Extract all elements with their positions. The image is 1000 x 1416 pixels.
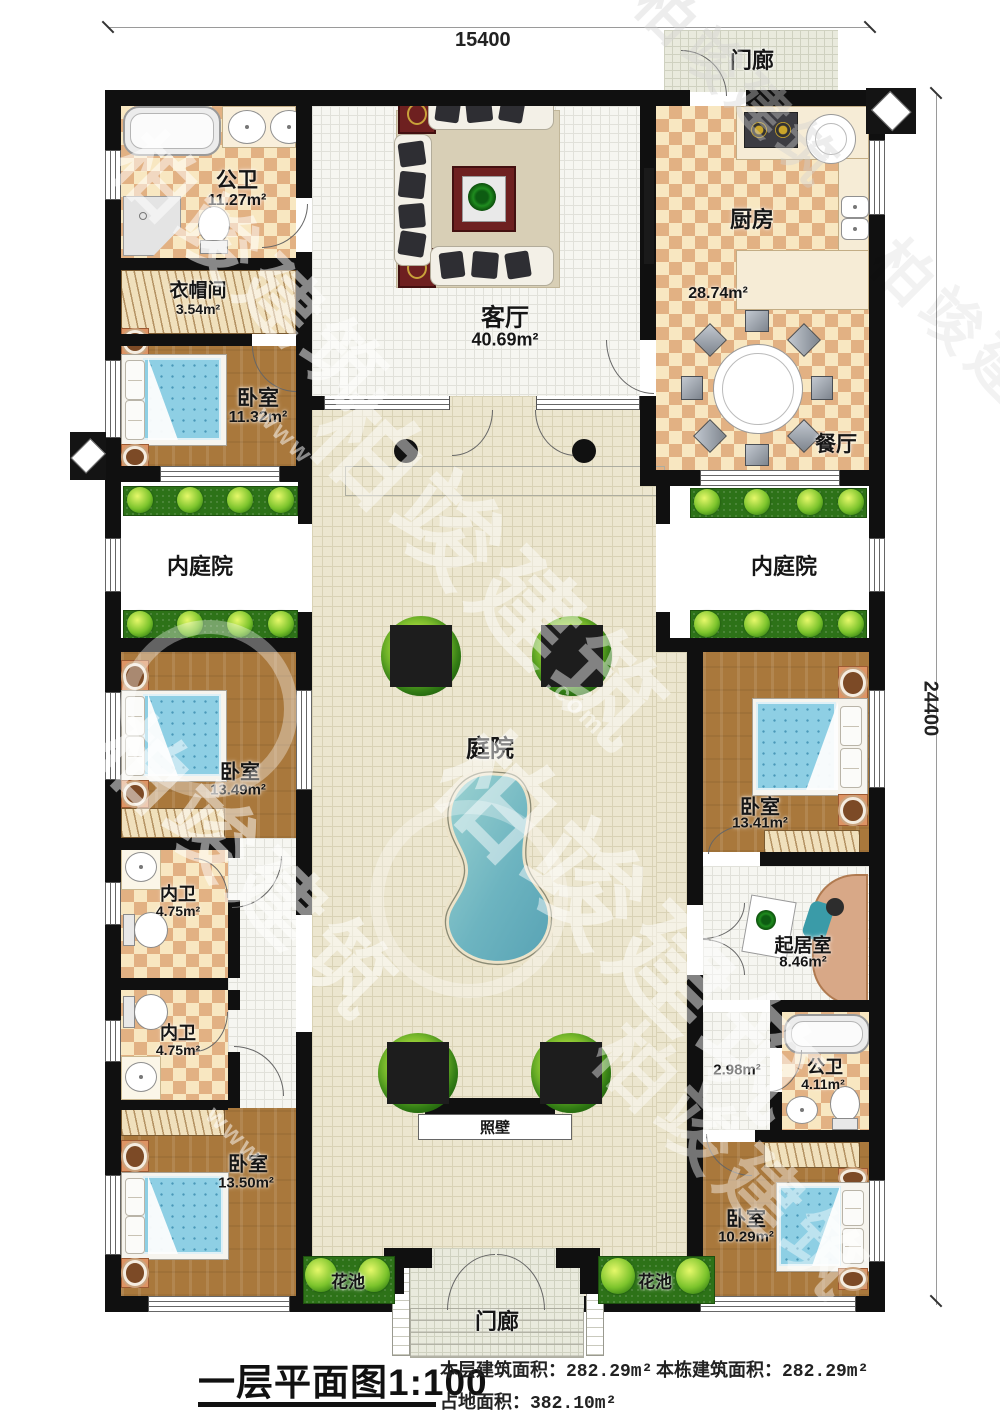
courtyard-step-outline <box>345 466 665 496</box>
kitchen-sink <box>841 218 869 240</box>
wall <box>638 396 656 410</box>
wall <box>656 482 670 524</box>
wall <box>105 638 312 652</box>
wall <box>296 790 312 915</box>
pillow <box>125 360 145 400</box>
window <box>105 150 121 200</box>
window <box>105 882 121 925</box>
bush <box>227 611 253 637</box>
wall <box>121 838 240 850</box>
bush <box>744 611 770 637</box>
room-area-bed-mr: 13.41m² <box>732 815 788 832</box>
sink <box>125 1062 157 1092</box>
tree <box>378 1033 458 1113</box>
window <box>105 692 121 780</box>
pillow <box>840 706 862 746</box>
room-label-bath-top: 公卫 <box>216 164 258 194</box>
window <box>869 1180 885 1262</box>
bathtub <box>784 1014 870 1054</box>
room-label-dining: 餐厅 <box>815 428 857 458</box>
window <box>105 1175 121 1255</box>
bush <box>227 487 253 513</box>
nightstand <box>838 1268 868 1290</box>
wardrobe <box>121 1108 225 1136</box>
room-label-bed-br: 卧室 <box>726 1203 766 1232</box>
stat-land-area: 占地面积：382.10m² <box>440 1388 616 1414</box>
window <box>296 690 312 790</box>
room-area-bath-ml2: 4.75m² <box>156 1042 200 1058</box>
room-label-bed-tl: 卧室 <box>237 382 279 412</box>
room-label-kitchen: 厨房 <box>730 202 774 234</box>
bush <box>676 1258 710 1294</box>
stove <box>744 112 798 148</box>
flowers <box>756 910 776 930</box>
column <box>572 439 596 463</box>
room-area-kitchen: 28.74m² <box>688 285 748 303</box>
room-label-cloak: 衣帽间 <box>169 276 226 303</box>
wall <box>121 258 296 270</box>
room-label-inner-left: 内庭院 <box>167 549 233 581</box>
pillow <box>125 736 145 776</box>
tree <box>531 1033 611 1113</box>
courtyard-floor-patch <box>656 652 687 1298</box>
room-area-bed-br: 10.29m² <box>718 1229 774 1246</box>
wall <box>746 90 885 106</box>
kitchen-counter <box>736 250 869 310</box>
bush <box>177 487 203 513</box>
wall <box>760 852 869 866</box>
room-area-bath-br: 4.11m² <box>801 1076 845 1092</box>
tree <box>381 616 461 696</box>
room-area-bed-ml: 13.49m² <box>210 782 266 799</box>
kitchen-round-table <box>806 114 856 164</box>
dimension-top-value: 15400 <box>455 29 511 52</box>
bush <box>268 487 294 513</box>
window <box>869 538 885 592</box>
pillow <box>842 1190 864 1226</box>
room-label-courtyard: 庭院 <box>466 729 514 764</box>
toilet-tank <box>200 240 228 254</box>
bush <box>127 611 153 637</box>
pillow <box>125 1178 145 1216</box>
chimney <box>866 88 916 134</box>
dining-chair <box>811 376 833 400</box>
window <box>324 396 450 410</box>
label-flower-left: 花池 <box>331 1268 365 1293</box>
dimension-line-top <box>108 27 870 28</box>
tv <box>644 168 654 264</box>
room-label-bed-ml: 卧室 <box>220 756 260 785</box>
tree <box>532 616 612 696</box>
room-area-living: 40.69m² <box>471 330 538 351</box>
wall <box>298 482 312 524</box>
room-label-porch-top: 门廊 <box>730 43 774 75</box>
window <box>869 690 885 788</box>
wall <box>296 252 312 480</box>
wall <box>121 334 252 346</box>
nightstand <box>121 660 149 692</box>
room-label-inner-right: 内庭院 <box>751 549 817 581</box>
dimension-right-value: 24400 <box>919 659 942 759</box>
sofa-cushion <box>397 230 426 258</box>
chimney <box>70 432 106 480</box>
window <box>869 140 885 215</box>
wall <box>105 90 690 106</box>
stat-land-area-label: 占地面积： <box>440 1392 530 1412</box>
wall <box>228 900 240 978</box>
nightstand <box>121 780 149 808</box>
stat-building-area: 本栋建筑面积：282.29m² <box>656 1356 868 1382</box>
dining-chair <box>681 376 703 400</box>
plant <box>468 183 496 211</box>
stat-building-area-value: 282.29m² <box>782 1362 868 1382</box>
pillow <box>840 748 862 788</box>
window <box>105 360 121 438</box>
sofa-cushion <box>397 140 426 167</box>
wall <box>640 398 656 486</box>
room-label-bed-bl: 卧室 <box>228 1148 268 1177</box>
window <box>160 466 280 482</box>
wall <box>296 652 312 690</box>
sofa-cushion <box>439 251 466 280</box>
bush <box>268 611 294 637</box>
stat-floor-area-label: 本层建筑面积： <box>440 1360 566 1380</box>
pillow <box>125 1216 145 1254</box>
window <box>105 538 121 592</box>
sink <box>125 852 157 882</box>
dining-chair <box>745 310 769 332</box>
pillow <box>842 1228 864 1264</box>
window <box>148 1296 290 1312</box>
toilet-tank <box>832 1118 858 1130</box>
room-area-hall-br: 2.98m² <box>713 1062 761 1079</box>
bathtub <box>123 106 221 156</box>
nightstand <box>121 1258 149 1288</box>
room-label-living: 客厅 <box>481 298 529 333</box>
door-arc <box>262 204 308 248</box>
window <box>700 1296 856 1312</box>
wall <box>121 1100 228 1110</box>
wall <box>687 652 703 905</box>
bush <box>838 611 864 637</box>
bush <box>601 1258 635 1294</box>
wall <box>687 975 703 1298</box>
sink <box>786 1096 818 1124</box>
window <box>105 1020 121 1062</box>
wall <box>770 1012 782 1048</box>
room-area-bed-bl: 13.50m² <box>218 1175 274 1192</box>
nightstand <box>121 1140 149 1172</box>
bush <box>127 487 153 513</box>
sofa-cushion <box>471 251 499 279</box>
bush <box>797 611 823 637</box>
bush <box>797 489 823 515</box>
bush <box>694 489 720 515</box>
wall <box>296 106 312 198</box>
wall <box>840 470 869 486</box>
wall <box>770 1092 782 1130</box>
room-area-cloak: 3.54m² <box>176 301 220 317</box>
stat-building-area-label: 本栋建筑面积： <box>656 1360 782 1380</box>
wall <box>228 1096 240 1108</box>
bush <box>744 489 770 515</box>
wardrobe <box>764 1142 860 1168</box>
wall <box>105 466 160 482</box>
bush <box>838 489 864 515</box>
room-area-bath-top: 11.27m² <box>208 192 267 210</box>
wall <box>770 1000 869 1012</box>
stat-floor-area-value: 282.29m² <box>566 1362 652 1382</box>
room-area-sitting: 8.46m² <box>779 954 827 971</box>
room-area-bed-tl: 11.32m² <box>229 409 288 427</box>
porch-column <box>580 1248 600 1294</box>
window <box>536 396 640 410</box>
title-underline <box>198 1402 436 1407</box>
wall <box>280 466 312 482</box>
wardrobe <box>121 808 225 838</box>
stat-floor-area: 本层建筑面积：282.29m² <box>440 1356 652 1382</box>
column <box>394 439 418 463</box>
label-flower-right: 花池 <box>638 1268 672 1293</box>
window <box>700 470 840 486</box>
pillow <box>125 696 145 736</box>
dining-chair <box>745 444 769 466</box>
person-head <box>826 898 844 916</box>
toilet <box>198 206 230 244</box>
stat-land-area-value: 382.10m² <box>530 1394 616 1414</box>
bush <box>694 611 720 637</box>
nightstand <box>838 794 868 826</box>
sofa-cushion <box>398 203 426 229</box>
dining-table <box>713 344 803 434</box>
room-area-bath-ml1: 4.75m² <box>156 903 200 919</box>
sofa-cushion <box>504 250 532 279</box>
bush <box>177 611 203 637</box>
pond <box>424 764 574 972</box>
wall <box>228 990 240 1010</box>
wall <box>121 978 228 990</box>
pillow <box>125 400 145 440</box>
sofa-cushion <box>398 171 427 200</box>
nightstand <box>838 666 868 700</box>
room-label-porch-bottom: 门廊 <box>475 1304 519 1336</box>
label-screen-wall: 照壁 <box>480 1117 510 1138</box>
wall <box>656 638 869 652</box>
kitchen-sink <box>841 196 869 218</box>
floor-plan: 15400 24400 门廊 公卫 11.27m² 衣帽间 3.54m² 卧室 … <box>0 0 1000 1416</box>
wall <box>755 1130 869 1142</box>
sink <box>228 110 266 144</box>
